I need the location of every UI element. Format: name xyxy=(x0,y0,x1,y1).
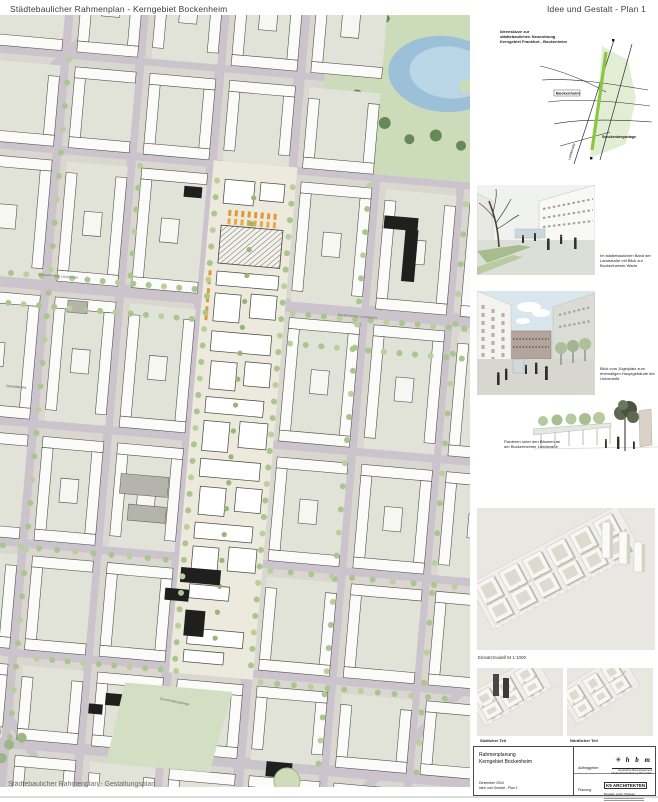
market-stall xyxy=(204,315,207,320)
building-inner xyxy=(147,355,167,380)
city-plan-svg: Bockenheimer Landstraße Bockenheimer Lan… xyxy=(0,15,470,787)
map-overlay-caption: Städtebaulicher Rahmenplan - Gestaltungs… xyxy=(8,781,155,788)
depot-building xyxy=(218,225,283,268)
planned-building xyxy=(259,182,284,202)
caption-fig2: Blick vom Jügelplatz zum ehemaligen Haup… xyxy=(600,366,655,382)
building-inner xyxy=(341,15,361,38)
location-sketch: Bockenheim Senckenberganlage Landstraße xyxy=(540,38,656,166)
market-stall xyxy=(234,219,238,225)
fig3-structure-right xyxy=(639,409,652,447)
sheet-edge-shadow xyxy=(0,796,658,798)
building-inner xyxy=(383,506,403,531)
market-stall xyxy=(260,221,264,227)
rendering-juegelplatz xyxy=(477,291,595,395)
sheet-title-left: Städtebaulicher Rahmenplan - Kerngebiet … xyxy=(10,4,227,14)
market-stall xyxy=(241,211,245,217)
rendering-flanieren xyxy=(533,399,658,461)
project-line-2: Kerngebiet Bockenheim xyxy=(479,759,532,766)
building-inner xyxy=(321,232,341,257)
building-inner xyxy=(179,15,199,24)
client-label: Auftraggeber: xyxy=(578,766,599,770)
planned-building xyxy=(238,422,268,450)
planner-name: K9 ARCHITEKTEN xyxy=(604,782,647,789)
existing-building-gray xyxy=(127,504,166,523)
sketch-node-bottom xyxy=(590,157,592,159)
planned-building xyxy=(243,362,271,388)
project-title: Rahmenplanung Kerngebiet Bockenheim xyxy=(479,752,532,766)
market-stall xyxy=(266,222,270,228)
caption-fig3: Flanieren unter den Bäumen an der Bocken… xyxy=(504,439,564,449)
planned-building xyxy=(234,487,262,513)
caption-fig1: Im städtebaulichen Band der Landstraße m… xyxy=(600,253,655,269)
building-inner xyxy=(309,370,329,395)
building-inner xyxy=(258,15,278,31)
project-sheet: Idee und Gestalt - Plan 1 xyxy=(479,786,518,791)
planner-label: Planung: xyxy=(578,788,592,792)
market-stall xyxy=(273,222,277,228)
caption-model: Einsatzmodell M 1:1000 xyxy=(478,655,598,661)
building-inner xyxy=(82,211,102,236)
market-stall xyxy=(235,210,239,216)
model-photo-south xyxy=(477,668,563,736)
city-plan: Bockenheimer Landstraße Bockenheimer Lan… xyxy=(0,15,470,787)
fig2-pavilion xyxy=(513,359,524,373)
planned-building xyxy=(189,584,230,601)
planned-building xyxy=(223,179,255,206)
planner-row: Planung: K9 ARCHITEKTEN Borgards. Lösch.… xyxy=(574,773,655,795)
market-stall xyxy=(267,213,271,219)
building-inner xyxy=(59,478,79,503)
planned-building xyxy=(198,486,226,516)
fig1-wall-left xyxy=(477,193,493,247)
sheet-title-right: Idee und Gestalt - Plan 1 xyxy=(547,4,646,14)
caption-model-north: Nördlicher Teil xyxy=(570,738,650,743)
market-stall xyxy=(227,218,231,224)
sketch-street-curve xyxy=(540,66,606,92)
title-block-project-cell: Rahmenplanung Kerngebiet Bockenheim Deze… xyxy=(474,747,574,795)
fig1-glass-band xyxy=(515,229,545,238)
planned-building xyxy=(227,547,257,573)
caption-model-south: Südlicher Teil xyxy=(480,738,560,743)
building-inner xyxy=(298,499,318,524)
sketch-node-top xyxy=(612,39,614,41)
project-date-sheet: Dezember 2004 Idee und Gestalt - Plan 1 xyxy=(479,781,518,791)
sketch-label-landstrasse: Landstraße xyxy=(567,143,576,161)
building-inner xyxy=(70,349,90,374)
market-stall xyxy=(260,213,264,219)
market-stall xyxy=(254,212,258,218)
existing-building-black xyxy=(183,609,205,637)
client-row: Auftraggeber: ✳ h b m Hessisches Baumana… xyxy=(574,747,655,774)
market-stall xyxy=(228,210,232,216)
market-stall xyxy=(208,270,211,275)
title-block-parties-cell: Auftraggeber: ✳ h b m Hessisches Baumana… xyxy=(574,747,655,795)
plan-sheet: { "header": { "title_left": "Städtebauli… xyxy=(0,0,658,800)
building-inner xyxy=(394,377,414,402)
building-inner xyxy=(0,204,17,229)
sketch-label-bockenheim: Bockenheim xyxy=(556,91,580,96)
market-stall xyxy=(247,211,251,217)
model-photo-north xyxy=(567,668,653,736)
fig2-building-center xyxy=(511,331,551,359)
rendering-landstrasse-band xyxy=(477,185,595,275)
market-stall xyxy=(273,214,277,220)
existing-building-black xyxy=(88,703,103,714)
existing-building-black xyxy=(164,588,189,602)
sketch-label-senckenberganlage: Senckenberganlage xyxy=(602,135,636,139)
project-line-1: Rahmenplanung xyxy=(479,752,532,759)
planned-building xyxy=(209,361,237,391)
planned-building xyxy=(201,420,230,452)
title-block: Rahmenplanung Kerngebiet Bockenheim Deze… xyxy=(473,746,656,796)
hbm-logo-text: h b m xyxy=(626,756,652,764)
model-photo-large xyxy=(477,508,655,650)
hbm-leaf-icon: ✳ xyxy=(615,757,621,764)
market-stall xyxy=(207,288,210,293)
existing-building-black xyxy=(184,186,203,199)
client-logo-block: ✳ h b m Hessisches Baumanagement Regiona… xyxy=(612,749,652,775)
existing-building-gray xyxy=(119,473,169,497)
planned-building xyxy=(249,294,277,320)
market-stall xyxy=(240,219,244,225)
building-inner xyxy=(159,218,179,243)
planned-building xyxy=(213,293,241,323)
